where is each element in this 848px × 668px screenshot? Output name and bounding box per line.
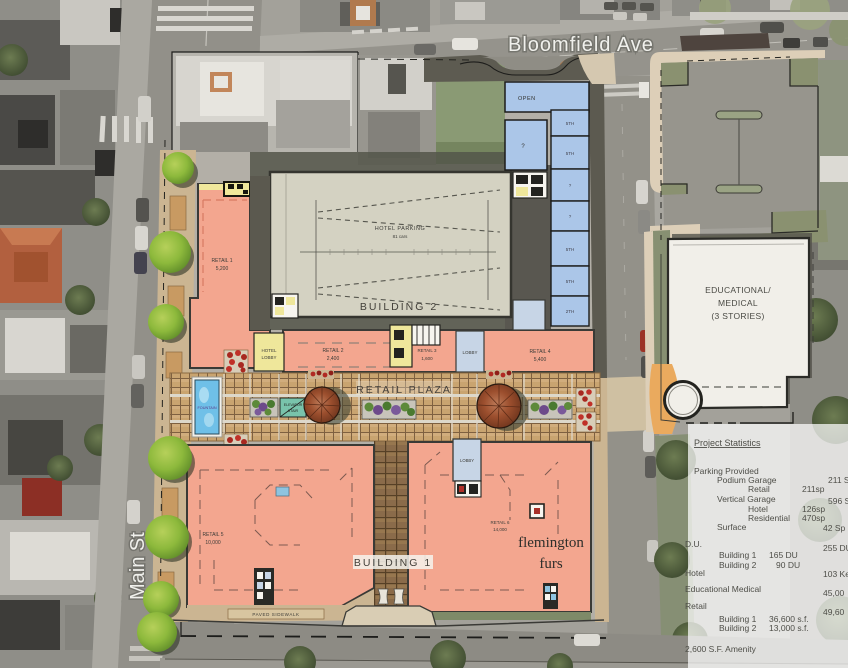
- svg-text:flemington: flemington: [518, 535, 584, 551]
- svg-text:470sp: 470sp: [802, 513, 825, 523]
- svg-text:MEDICAL: MEDICAL: [718, 298, 758, 308]
- svg-text:LOBBY: LOBBY: [261, 355, 276, 360]
- svg-text:HOTEL: HOTEL: [261, 348, 277, 353]
- svg-text:211 Sp: 211 Sp: [828, 475, 848, 485]
- svg-text:49,60: 49,60: [823, 607, 845, 617]
- svg-text:165 DU: 165 DU: [769, 550, 798, 560]
- svg-text:2,600 S.F. Amenity: 2,600 S.F. Amenity: [685, 644, 757, 654]
- svg-text:14,000: 14,000: [493, 527, 507, 532]
- svg-text:RETAIL 5: RETAIL 5: [202, 532, 223, 538]
- svg-text:5TH: 5TH: [566, 279, 575, 284]
- svg-text:90 DU: 90 DU: [776, 560, 800, 570]
- svg-text:Hotel: Hotel: [685, 568, 705, 578]
- svg-text:Surface: Surface: [717, 522, 747, 532]
- svg-text:OPEN: OPEN: [518, 96, 536, 102]
- svg-text:5,400: 5,400: [534, 357, 547, 363]
- svg-text:PAVED SIDEWALK: PAVED SIDEWALK: [252, 612, 299, 617]
- svg-text:13,000 s.f.: 13,000 s.f.: [769, 623, 809, 633]
- svg-text:RETAIL 2: RETAIL 2: [322, 348, 343, 354]
- svg-text:(3 STORIES): (3 STORIES): [711, 311, 764, 321]
- svg-text:LOBBY: LOBBY: [462, 350, 477, 355]
- svg-text:Building 2: Building 2: [719, 560, 757, 570]
- svg-text:BUILDING 1: BUILDING 1: [354, 557, 432, 569]
- svg-text:HOTEL PARKING: HOTEL PARKING: [375, 226, 426, 232]
- svg-text:Educational Medical: Educational Medical: [685, 584, 761, 594]
- svg-text:Bloomfield Ave: Bloomfield Ave: [508, 34, 654, 56]
- svg-text:ELEVATOR: ELEVATOR: [284, 403, 303, 407]
- svg-text:5TH: 5TH: [566, 121, 575, 126]
- svg-text:EDUCATIONAL/: EDUCATIONAL/: [705, 285, 771, 295]
- svg-text:furs: furs: [539, 556, 562, 572]
- svg-text:5,200: 5,200: [216, 266, 229, 272]
- svg-text:5TH: 5TH: [566, 151, 575, 156]
- svg-text:Vertical Garage: Vertical Garage: [717, 494, 776, 504]
- svg-text:1,600: 1,600: [421, 356, 433, 361]
- svg-text:Retail: Retail: [685, 601, 707, 611]
- svg-text:81 cars: 81 cars: [393, 234, 409, 239]
- svg-text:42 Sp: 42 Sp: [823, 523, 845, 533]
- svg-text:Building 2: Building 2: [719, 623, 757, 633]
- svg-text:Project Statistics: Project Statistics: [694, 438, 761, 448]
- svg-text:RETAIL PLAZA: RETAIL PLAZA: [356, 384, 452, 396]
- svg-text:RETAIL 6: RETAIL 6: [490, 520, 510, 525]
- svg-text:STAIR: STAIR: [288, 409, 299, 413]
- svg-text:10,000: 10,000: [205, 540, 221, 546]
- svg-text:Retail: Retail: [748, 484, 770, 494]
- svg-text:Building 1: Building 1: [719, 550, 757, 560]
- svg-text:LOBBY: LOBBY: [460, 458, 474, 463]
- svg-text:D.U.: D.U.: [685, 539, 702, 549]
- svg-text:FOUNTAIN: FOUNTAIN: [197, 406, 216, 410]
- svg-text:RETAIL 4: RETAIL 4: [529, 349, 550, 355]
- svg-text:5TH: 5TH: [566, 247, 575, 252]
- svg-text:BUILDING 2: BUILDING 2: [360, 301, 438, 313]
- svg-text:255 DU: 255 DU: [823, 543, 848, 553]
- svg-text:211sp: 211sp: [802, 484, 825, 494]
- svg-text:RETAIL 1: RETAIL 1: [211, 258, 232, 264]
- svg-text:103 Ke: 103 Ke: [823, 569, 848, 579]
- svg-text:2,400: 2,400: [327, 356, 340, 362]
- svg-text:45,00: 45,00: [823, 588, 845, 598]
- svg-text:RETAIL 3: RETAIL 3: [417, 348, 437, 353]
- svg-text:596 Sp: 596 Sp: [828, 496, 848, 506]
- svg-text:Residential: Residential: [748, 513, 790, 523]
- svg-text:2TH: 2TH: [566, 309, 575, 314]
